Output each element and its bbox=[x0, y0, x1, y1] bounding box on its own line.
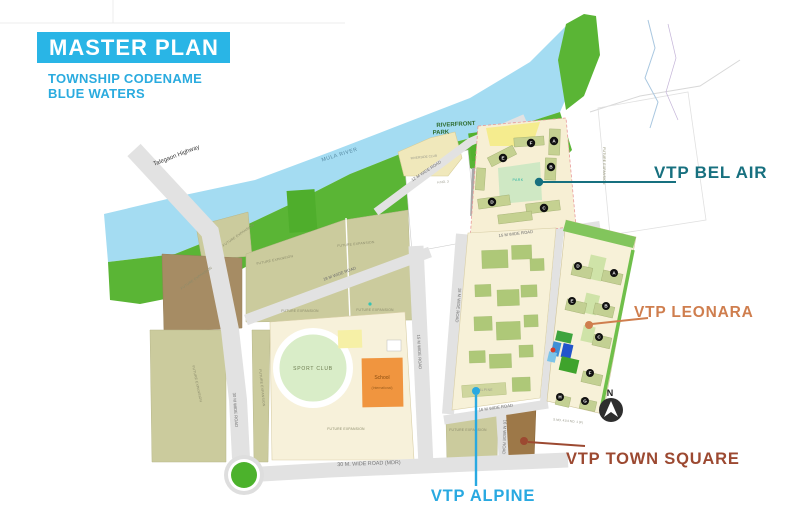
teal-dot bbox=[368, 302, 371, 305]
alpine-callout-dot bbox=[472, 387, 480, 395]
leonara-building-e: E bbox=[570, 299, 573, 304]
alpine-parcel-label: ALPINE bbox=[479, 388, 493, 392]
future-expansion-sport: FUTURE EXPANSION bbox=[327, 427, 365, 431]
leonara-callout-dot bbox=[585, 321, 593, 329]
bel-air-building-f: F bbox=[530, 141, 533, 146]
bel-air-cluster: PARK A B C D E F bbox=[470, 118, 576, 240]
yellow-strip bbox=[338, 330, 363, 349]
alpine-cluster: ALPINE bbox=[452, 228, 556, 410]
school-label-2: (International) bbox=[372, 386, 393, 390]
parcel-olive-left-tall bbox=[150, 330, 226, 462]
future-expansion-bottom: FUTURE EXPANSION bbox=[449, 428, 487, 432]
riverfront-park-label-2: PARK bbox=[433, 130, 451, 137]
master-plan-page: { "header": { "title": "MASTER PLAN", "s… bbox=[0, 0, 797, 530]
leonara-callout-label: VTP LEONARA bbox=[634, 304, 754, 321]
bel-air-building-e: E bbox=[501, 156, 504, 161]
future-expansion-mid-lr: FUTURE EXPANSION bbox=[356, 308, 394, 312]
town-square-callout-dot bbox=[520, 437, 528, 445]
subtitle-line-1: TOWNSHIP CODENAME bbox=[48, 71, 202, 86]
page-crease-lines bbox=[0, 0, 345, 23]
talegaon-highway-label: Talegaon Highway bbox=[153, 144, 201, 167]
survey-boundary-lines bbox=[590, 20, 740, 235]
leonara-building-g: G bbox=[583, 399, 587, 404]
bel-air-callout-label: VTP BEL AIR bbox=[654, 163, 767, 182]
sport-club-label: SPORT CLUB bbox=[293, 366, 333, 372]
future-expansion-belair-right: FUTURE EXPANSION bbox=[602, 147, 606, 185]
roundabout bbox=[224, 455, 264, 495]
future-expansion-mid-ll: FUTURE EXPANSION bbox=[281, 309, 319, 313]
road-30m-mdr bbox=[262, 460, 568, 474]
leonara-building-f: F bbox=[589, 371, 592, 376]
sno-leonara-label: S.NO. 41/4 NO. 1 (P) bbox=[553, 417, 583, 424]
bel-air-callout-dot bbox=[535, 178, 543, 186]
school-label-1: School bbox=[374, 375, 389, 381]
north-label: N bbox=[607, 388, 614, 398]
white-plot bbox=[387, 340, 401, 351]
bel-air-park-label: PARK bbox=[512, 178, 523, 182]
school-building bbox=[362, 358, 404, 408]
page-subtitle: TOWNSHIP CODENAME BLUE WATERS bbox=[48, 71, 202, 101]
subtitle-line-2: BLUE WATERS bbox=[48, 86, 202, 101]
alpine-callout-label: VTP ALPINE bbox=[431, 487, 535, 505]
page-title: MASTER PLAN bbox=[37, 32, 230, 63]
town-square-callout-label: VTP TOWN SQUARE bbox=[566, 450, 740, 468]
